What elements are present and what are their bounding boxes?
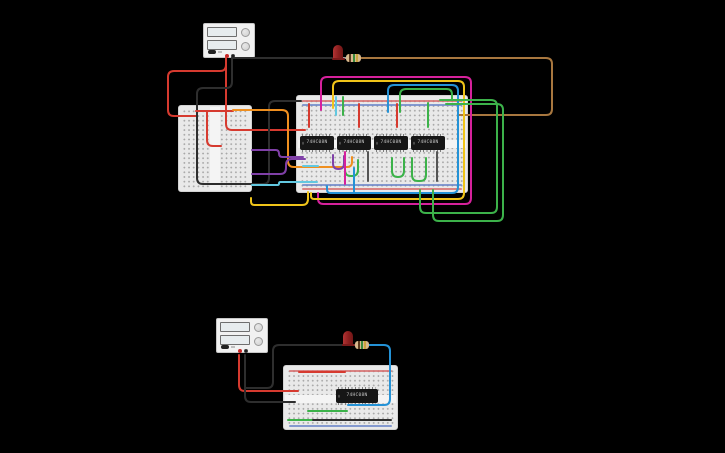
ic-chip-3[interactable]: 74HC08N [374, 136, 408, 150]
ic-chip-1[interactable]: 74HC08N [300, 136, 334, 150]
psu-current-knob[interactable] [241, 42, 250, 51]
power-rail-positive [302, 100, 462, 102]
power-supply[interactable] [203, 23, 255, 58]
resistor[interactable] [346, 54, 361, 62]
ic-notch [302, 142, 305, 145]
power-rail-negative [289, 425, 392, 427]
led-red[interactable] [333, 45, 343, 59]
ic-label: 74HC08N [417, 141, 438, 146]
ic-label: 74HC08N [346, 394, 367, 399]
ic-notch [413, 142, 416, 145]
ic-chip-2[interactable]: 74HC08N [337, 136, 371, 150]
ic-notch [338, 395, 341, 398]
psu-voltage-display [207, 27, 237, 37]
ic-chip-4[interactable]: 74HC08N [411, 136, 445, 150]
psu-voltage-knob[interactable] [241, 28, 250, 37]
psu-current-display [207, 40, 237, 50]
resistor-band [356, 54, 358, 62]
resistor-band [361, 341, 363, 349]
psu-current-knob[interactable] [254, 337, 263, 346]
psu-voltage-knob[interactable] [254, 323, 263, 332]
psu-voltage-display [220, 322, 250, 332]
power-supply-2[interactable] [216, 318, 268, 353]
resistor-2[interactable] [355, 341, 369, 349]
resistor-band [358, 341, 360, 349]
wire-yellow-28[interactable] [251, 192, 308, 205]
ic-chip-5[interactable]: 74HC08N [336, 389, 378, 403]
resistor-band [353, 54, 355, 62]
psu-current-display [220, 335, 250, 345]
resistor-band [349, 54, 351, 62]
ic-notch [339, 142, 342, 145]
psu-negative-terminal[interactable] [244, 349, 248, 353]
power-rail-positive [302, 188, 462, 190]
power-rail-negative [302, 184, 462, 186]
led-red-2[interactable] [343, 331, 353, 345]
ic-notch [376, 142, 379, 145]
ic-label: 74HC08N [380, 141, 401, 146]
power-rail-negative [302, 104, 462, 106]
circuit-canvas: 74HC08N 74HC08N 74HC08N 74HC08N 74HC08N [0, 0, 725, 453]
power-rail-positive [289, 370, 392, 372]
psu-power-button[interactable] [208, 50, 216, 54]
psu-positive-terminal[interactable] [225, 54, 229, 58]
resistor-band [364, 341, 366, 349]
psu-negative-terminal[interactable] [231, 54, 235, 58]
breadboard-channel [210, 107, 220, 190]
breadboard-small[interactable] [178, 105, 252, 192]
psu-power-button[interactable] [221, 345, 229, 349]
ic-label: 74HC08N [306, 141, 327, 146]
ic-label: 74HC08N [343, 141, 364, 146]
psu-positive-terminal[interactable] [238, 349, 242, 353]
